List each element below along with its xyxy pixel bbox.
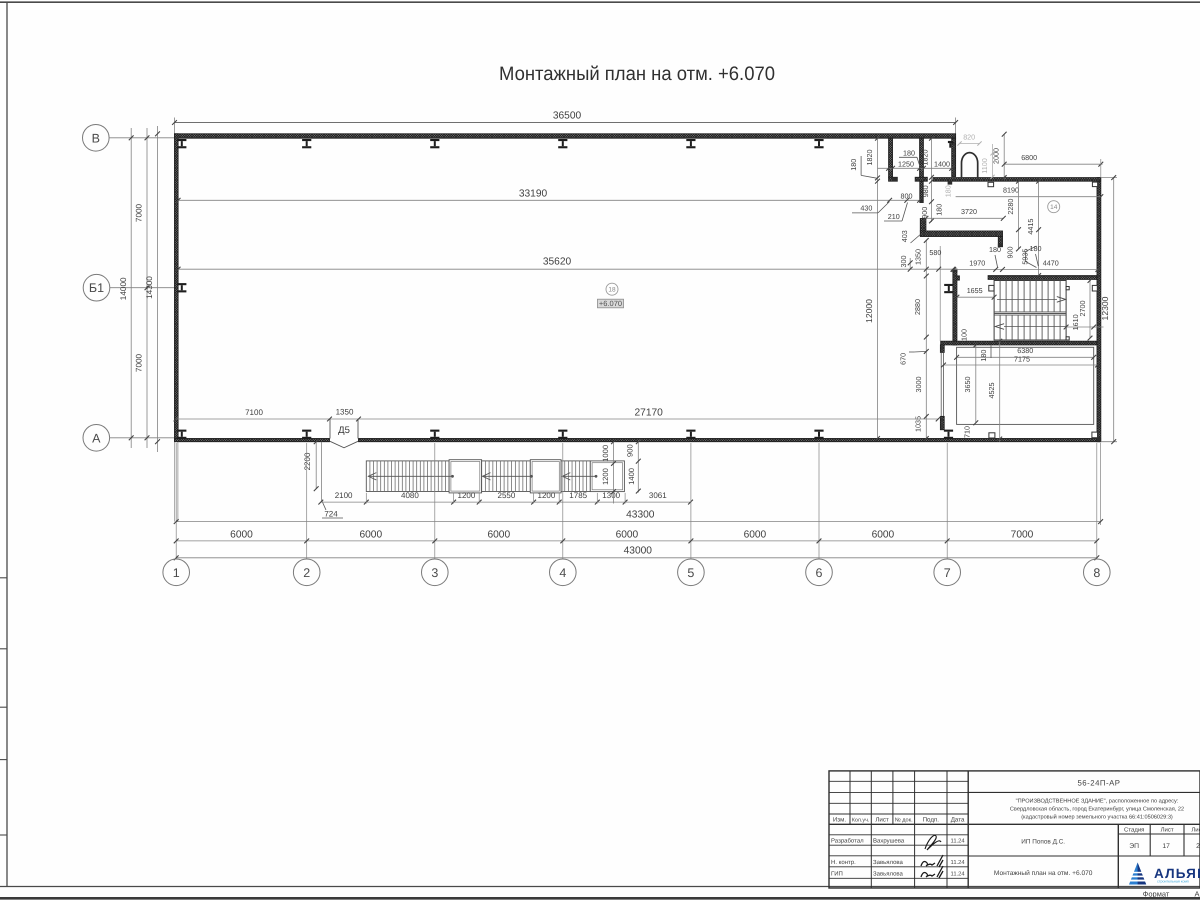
svg-text:7: 7 bbox=[944, 566, 951, 580]
svg-text:1200: 1200 bbox=[458, 491, 476, 500]
svg-text:3000: 3000 bbox=[914, 377, 923, 393]
svg-text:14: 14 bbox=[1050, 204, 1058, 211]
svg-text:180: 180 bbox=[989, 245, 1001, 254]
svg-text:43000: 43000 bbox=[624, 546, 653, 557]
svg-text:18: 18 bbox=[608, 287, 616, 294]
svg-text:Вахрушева: Вахрушева bbox=[873, 837, 905, 844]
svg-text:403: 403 bbox=[900, 230, 909, 242]
svg-text:6000: 6000 bbox=[616, 529, 639, 540]
svg-text:800: 800 bbox=[901, 191, 913, 200]
svg-text:2200: 2200 bbox=[303, 452, 312, 470]
svg-text:2: 2 bbox=[1196, 843, 1200, 850]
svg-text:1250: 1250 bbox=[898, 159, 914, 168]
svg-text:1100: 1100 bbox=[980, 158, 989, 173]
svg-text:В: В bbox=[92, 131, 100, 145]
svg-text:180: 180 bbox=[943, 185, 952, 197]
svg-text:1610: 1610 bbox=[1071, 314, 1080, 330]
svg-text:35620: 35620 bbox=[543, 257, 572, 268]
svg-text:7175: 7175 bbox=[1014, 355, 1030, 364]
svg-text:1035: 1035 bbox=[914, 416, 923, 432]
svg-text:2000: 2000 bbox=[992, 148, 1001, 164]
svg-text:980: 980 bbox=[921, 185, 930, 197]
svg-text:7000: 7000 bbox=[135, 203, 144, 222]
svg-text:1785: 1785 bbox=[569, 491, 587, 500]
svg-text:Свердловская область, город Ек: Свердловская область, город Екатеринбург… bbox=[1010, 806, 1184, 813]
svg-text:ЭП: ЭП bbox=[1129, 843, 1139, 850]
svg-text:900: 900 bbox=[1005, 247, 1014, 259]
svg-text:1000: 1000 bbox=[601, 445, 610, 462]
svg-text:2700: 2700 bbox=[1078, 301, 1087, 317]
svg-text:36500: 36500 bbox=[553, 111, 582, 122]
svg-text:"ПРОИЗВОДСТВЕННОЕ ЗДАНИЕ", рас: "ПРОИЗВОДСТВЕННОЕ ЗДАНИЕ", расположенное… bbox=[1016, 799, 1179, 805]
svg-text:7000: 7000 bbox=[135, 353, 144, 372]
svg-text:Завьялова: Завьялова bbox=[873, 859, 904, 866]
svg-text:Кол.уч.: Кол.уч. bbox=[852, 817, 870, 823]
svg-text:8: 8 bbox=[1093, 566, 1100, 580]
svg-text:300: 300 bbox=[899, 256, 908, 268]
svg-text:4415: 4415 bbox=[1026, 219, 1035, 235]
svg-text:Дата: Дата bbox=[951, 816, 965, 823]
svg-text:6: 6 bbox=[816, 566, 823, 580]
svg-text:6000: 6000 bbox=[744, 529, 767, 540]
svg-text:А: А bbox=[1194, 889, 1199, 898]
svg-text:1200: 1200 bbox=[538, 491, 556, 500]
svg-text:11.24: 11.24 bbox=[951, 859, 966, 866]
svg-text:580: 580 bbox=[929, 248, 941, 257]
svg-text:1: 1 bbox=[173, 566, 180, 580]
svg-text:2880: 2880 bbox=[913, 299, 922, 315]
svg-text:1350: 1350 bbox=[914, 249, 923, 265]
svg-text:А: А bbox=[92, 431, 101, 445]
svg-text:7100: 7100 bbox=[245, 408, 263, 417]
svg-text:2280: 2280 bbox=[1006, 199, 1015, 215]
svg-text:2550: 2550 bbox=[498, 491, 516, 500]
svg-text:100: 100 bbox=[959, 329, 968, 341]
svg-text:17: 17 bbox=[1162, 843, 1170, 850]
svg-text:строительная комп: строительная комп bbox=[1157, 879, 1189, 883]
svg-text:7000: 7000 bbox=[1011, 529, 1034, 540]
svg-text:4525: 4525 bbox=[987, 383, 996, 399]
svg-text:33190: 33190 bbox=[519, 189, 548, 200]
svg-text:1655: 1655 bbox=[967, 286, 983, 295]
svg-text:Лис: Лис bbox=[1191, 827, 1200, 834]
svg-text:210: 210 bbox=[888, 212, 900, 221]
svg-text:4: 4 bbox=[559, 566, 566, 580]
svg-text:1300: 1300 bbox=[602, 491, 620, 500]
svg-text:900: 900 bbox=[626, 444, 635, 457]
svg-text:14300: 14300 bbox=[145, 276, 154, 299]
svg-text:4470: 4470 bbox=[1043, 259, 1059, 268]
svg-text:Разработал: Разработал bbox=[831, 837, 864, 844]
svg-text:6800: 6800 bbox=[1021, 153, 1037, 162]
svg-text:1400: 1400 bbox=[934, 160, 950, 169]
svg-text:724: 724 bbox=[324, 510, 338, 519]
svg-text:12000: 12000 bbox=[864, 299, 874, 323]
svg-text:180: 180 bbox=[979, 350, 988, 362]
svg-text:430: 430 bbox=[860, 204, 872, 213]
svg-text:2: 2 bbox=[303, 566, 310, 580]
svg-text:ИП Попов Д.С.: ИП Попов Д.С. bbox=[1021, 838, 1065, 845]
svg-text:1970: 1970 bbox=[969, 258, 985, 267]
svg-text:3720: 3720 bbox=[961, 207, 977, 216]
svg-text:2100: 2100 bbox=[335, 491, 353, 500]
svg-text:Н. контр.: Н. контр. bbox=[831, 859, 856, 866]
svg-text:4080: 4080 bbox=[401, 491, 419, 500]
svg-text:Б1: Б1 bbox=[89, 281, 104, 295]
svg-text:180: 180 bbox=[1030, 244, 1042, 253]
svg-text:6000: 6000 bbox=[487, 529, 510, 540]
svg-text:+6.070: +6.070 bbox=[599, 299, 622, 308]
svg-text:5: 5 bbox=[687, 566, 694, 580]
svg-text:(кадастровый номер земельного: (кадастровый номер земельного участка 66… bbox=[1021, 814, 1173, 821]
svg-text:3061: 3061 bbox=[649, 491, 667, 500]
svg-text:14000: 14000 bbox=[119, 277, 128, 300]
svg-text:Изм.: Изм. bbox=[833, 816, 847, 823]
svg-text:Д5: Д5 bbox=[338, 425, 350, 436]
svg-text:820: 820 bbox=[963, 132, 975, 141]
svg-text:№ док.: № док. bbox=[895, 817, 913, 823]
svg-text:3: 3 bbox=[431, 566, 438, 580]
svg-text:6000: 6000 bbox=[872, 529, 895, 540]
svg-text:670: 670 bbox=[898, 353, 907, 365]
svg-text:Монтажный план на отм. +6.070: Монтажный план на отм. +6.070 bbox=[499, 63, 775, 85]
svg-text:1400: 1400 bbox=[627, 468, 636, 485]
svg-text:6000: 6000 bbox=[230, 529, 253, 540]
svg-text:11.24: 11.24 bbox=[951, 870, 966, 877]
svg-text:56-24П-АР: 56-24П-АР bbox=[1077, 778, 1120, 787]
svg-text:12300: 12300 bbox=[1100, 296, 1110, 320]
svg-text:180: 180 bbox=[849, 159, 858, 171]
svg-text:Монтажный план на отм. +6.070: Монтажный план на отм. +6.070 bbox=[994, 870, 1093, 877]
svg-text:43300: 43300 bbox=[626, 510, 655, 521]
svg-text:Завьялова: Завьялова bbox=[873, 870, 904, 877]
svg-text:ГИП: ГИП bbox=[831, 870, 843, 877]
svg-text:1820: 1820 bbox=[865, 150, 874, 166]
svg-text:Лист: Лист bbox=[1161, 827, 1174, 834]
svg-text:11.24: 11.24 bbox=[951, 837, 966, 844]
svg-text:Стадия: Стадия bbox=[1124, 827, 1144, 834]
svg-text:3650: 3650 bbox=[963, 377, 972, 393]
svg-text:1200: 1200 bbox=[601, 468, 610, 485]
svg-text:Формат: Формат bbox=[1143, 889, 1170, 898]
svg-text:180: 180 bbox=[935, 204, 944, 216]
svg-text:27170: 27170 bbox=[635, 407, 664, 418]
svg-text:1820: 1820 bbox=[920, 150, 929, 166]
svg-text:1350: 1350 bbox=[336, 407, 354, 416]
svg-text:6000: 6000 bbox=[359, 529, 382, 540]
svg-text:8190: 8190 bbox=[1003, 185, 1019, 194]
svg-text:710: 710 bbox=[963, 426, 972, 438]
svg-text:180: 180 bbox=[903, 148, 915, 157]
svg-text:Подп.: Подп. bbox=[923, 816, 940, 823]
svg-text:Лист: Лист bbox=[875, 816, 889, 823]
